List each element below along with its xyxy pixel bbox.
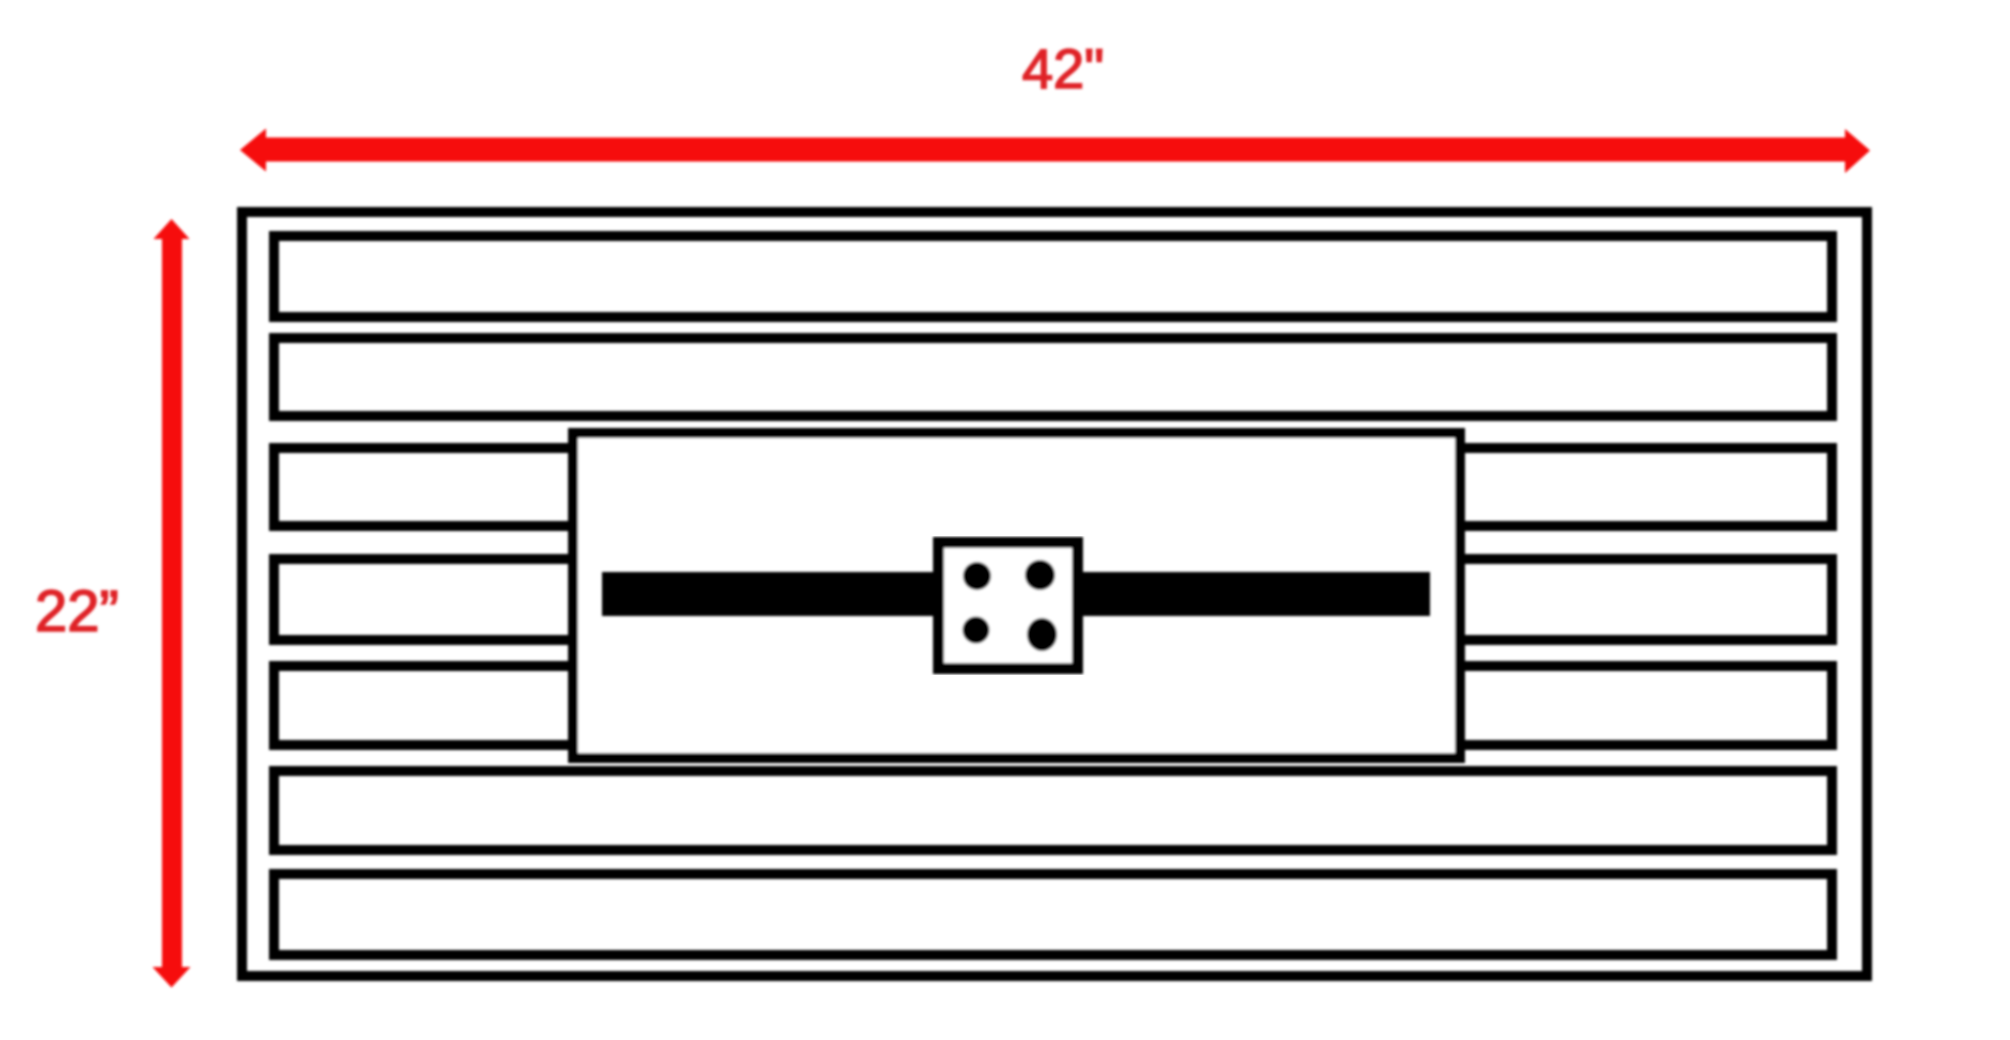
svg-text:42": 42"	[1022, 37, 1104, 100]
svg-text:22”: 22”	[35, 579, 119, 644]
